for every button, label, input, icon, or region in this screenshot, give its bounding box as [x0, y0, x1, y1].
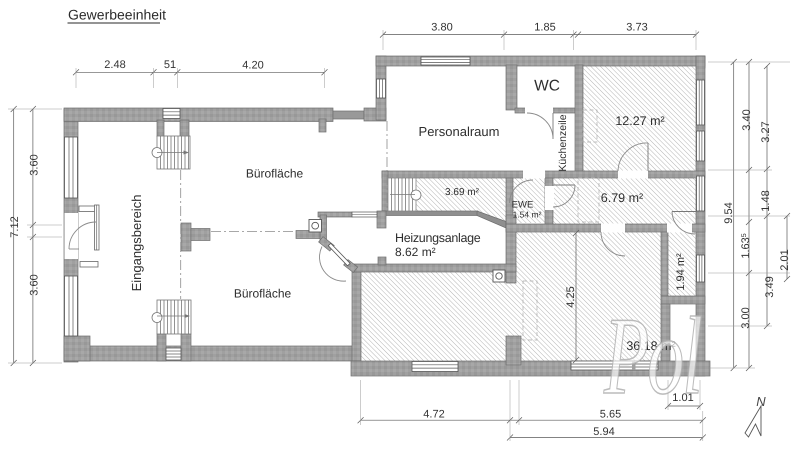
svg-text:Personalraum: Personalraum: [419, 124, 500, 139]
svg-text:1.54 m²: 1.54 m²: [513, 210, 542, 220]
svg-text:7.12: 7.12: [9, 216, 21, 237]
svg-text:3.00: 3.00: [740, 307, 752, 328]
svg-text:3.40: 3.40: [741, 109, 753, 130]
svg-text:Pol: Pol: [603, 296, 701, 419]
svg-text:Bürofläche: Bürofläche: [246, 167, 304, 181]
svg-text:Bürofläche: Bürofläche: [234, 287, 292, 301]
svg-text:3.27: 3.27: [760, 121, 772, 142]
svg-text:6.79 m²: 6.79 m²: [601, 191, 643, 205]
svg-text:N: N: [756, 394, 766, 409]
svg-text:5.94: 5.94: [593, 426, 614, 438]
svg-text:Heizungsanlage: Heizungsanlage: [395, 231, 481, 245]
svg-text:3.60: 3.60: [29, 274, 41, 295]
svg-text:4.25: 4.25: [565, 286, 577, 307]
svg-text:51: 51: [164, 59, 176, 71]
svg-text:Eingangsbereich: Eingangsbereich: [129, 195, 144, 292]
svg-text:12.27 m²: 12.27 m²: [615, 114, 664, 128]
svg-text:8.62 m²: 8.62 m²: [395, 245, 436, 259]
svg-text:Küchenzeile: Küchenzeile: [557, 114, 569, 171]
svg-text:4.20: 4.20: [242, 60, 263, 72]
svg-text:Gewerbeeinheit: Gewerbeeinheit: [68, 7, 166, 23]
svg-text:4.72: 4.72: [423, 409, 444, 421]
svg-text:1.85: 1.85: [534, 22, 555, 34]
svg-text:1.48: 1.48: [760, 190, 772, 211]
svg-text:3.80: 3.80: [431, 22, 452, 34]
svg-text:3.49: 3.49: [764, 276, 776, 297]
svg-text:9.54: 9.54: [723, 202, 735, 223]
svg-text:3.73: 3.73: [626, 22, 647, 34]
svg-text:2.01: 2.01: [779, 249, 791, 270]
svg-text:3.60: 3.60: [29, 154, 41, 175]
svg-text:WC: WC: [534, 78, 560, 95]
svg-text:1.94 m²: 1.94 m²: [675, 253, 687, 291]
svg-text:2.48: 2.48: [104, 59, 125, 71]
svg-text:3.69 m²: 3.69 m²: [445, 187, 480, 198]
